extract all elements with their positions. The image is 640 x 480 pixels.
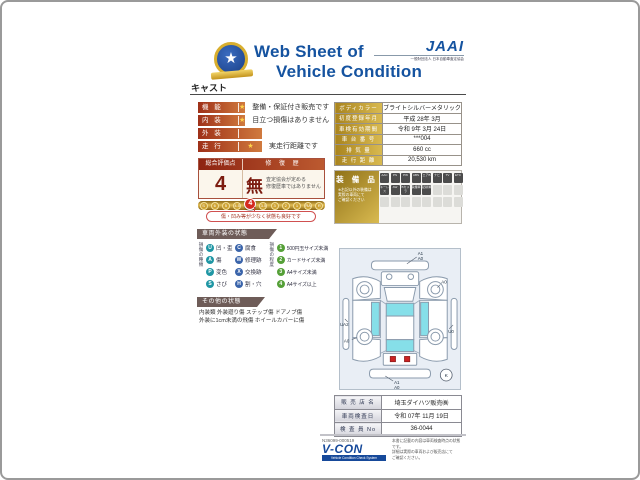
dealer-value: 令和 07年 11月 19日 [382,409,462,423]
legend-label: 修理跡 [245,256,262,264]
rating-bar: 機 能★ [198,102,245,113]
jaai-subtitle: 一般財団法人 日本自動車査定協会 [374,55,464,62]
table-row: 車両検査日令和 07年 11月 19日 [335,409,462,423]
vehicle-info-table: ボディカラーブライトシルバーメタリック 初度登録年月平成 28年 3月 車検有効… [334,102,462,166]
damage-code-icon: X [235,268,243,276]
equipment-badge-empty [401,197,410,207]
rating-bar: 外 装 [198,128,262,139]
hub-icon [360,285,369,294]
dealer-label: 販 売 店 名 [335,396,382,410]
rating-description: 実走行距離です [269,141,318,152]
damage-degree-header: 損傷の程度 [269,242,275,290]
grade-item: 5 [222,202,230,210]
grade-item: 2 [282,202,290,210]
rear-panel [383,353,416,365]
exterior-legend: 損傷の種類 U凹・歪 A傷 P変色 Sさび C腐食 W修理跡 X交換跡 H割・穴… [198,242,328,294]
legend-label: 割・穴 [245,280,262,288]
badge-row: キーレス AW Bカメラ 禁煙車 記録簿 [380,185,463,195]
info-value: 令和 9年 3月 24日 [383,124,462,135]
equipment-badge: 禁煙車 [412,185,421,195]
other-condition-line1: 内装類 外装廻り傷 ステップ傷 ドアノブ傷 [199,309,304,317]
damage-label-left-side: UA2 [340,322,349,327]
equipment-title-panel: 装 備 品 ※右記以外の装備は 実際の車両にて ご確認ください [335,171,379,223]
repair-history-note: 査定協会が定める 修復歴車ではありません [266,177,321,191]
equipment-badge: キーレス [380,185,389,195]
hub-icon [431,332,440,341]
star-icon: ★ [239,141,262,152]
vcon-logo: V-CON [322,443,363,455]
section-header-other: その他の状態 [197,297,265,307]
repair-history-cell: 無 査定協会が定める 修復歴車ではありません [243,170,324,198]
legend-label: 傷 [216,256,222,264]
front-glass [386,303,414,316]
equipment-badge: TV [443,173,452,183]
legend-label: 交換跡 [245,268,262,276]
rating-bar: 内 装★ [198,115,245,126]
equipment-badge-empty [422,197,431,207]
equipment-badge: 記録簿 [422,185,431,195]
grade-item: 3 [271,202,279,210]
legend-label: カードサイズ未満 [287,257,325,264]
title-line2: Vehicle Condition [276,62,422,82]
legend-item: W修理跡 [235,254,267,266]
hub-icon [360,332,369,341]
badge-row [380,197,463,207]
legend-item: X交換跡 [235,266,267,278]
rating-row-exterior: 外 装 [198,128,326,139]
condition-note-oval: 傷・凹み等が少なく状態も良好です [206,211,316,222]
legend-item: Sさび [206,278,233,290]
info-value: ブライトシルバーメタリック [383,103,462,114]
evaluation-box: 総合評価点 修 復 歴 4 無 査定協会が定める 修復歴車ではありません [198,158,325,199]
fine-print-line1: 本書に記載の内容は車両検査時点の状態です。 [392,439,464,450]
rating-label: 内 装 [198,115,238,126]
damage-label-right-side: U0 [448,329,454,334]
equipment-badge: エアB [422,173,431,183]
equipment-badges: AAC PS PW ABS エアB ナビ TV ETC キーレス AW Bカメラ… [379,171,464,223]
legend-item: 2カードサイズ未満 [277,254,328,266]
legend-label: A4サイズ以上 [287,281,317,288]
section-header-exterior: 車両外装の状態 [197,229,277,239]
damage-type-header: 損傷の種類 [198,242,204,290]
repair-history-header: 修 復 歴 [243,159,324,170]
damage-code-icon: C [235,244,243,252]
legend-item: 4A4サイズ以上 [277,278,328,290]
info-value: 20,530 km [383,155,462,166]
info-label: 車検有効期間 [335,124,383,135]
equipment-badge: ABS [412,173,421,183]
info-label: 排 気 量 [335,145,383,156]
car-diagram-svg: A1 A0 A0 UA2 U0 A0 A1 A0 K [340,249,460,389]
equipment-title: 装 備 品 [335,174,379,185]
star-icon [239,128,262,139]
rating-description: 整備・保証付き販売です [252,102,329,113]
equipment-badge-empty [380,197,389,207]
legend-item: 1500円玉サイズ未満 [277,242,328,254]
damage-code-icon: P [206,268,214,276]
damage-mark-rear-right [404,356,409,361]
rating-row-function: 機 能★ 整備・保証付き販売です [198,102,326,113]
equipment-badge-empty [454,197,463,207]
damage-code-icon: A [206,256,214,264]
headlight-right-icon [408,274,414,280]
info-value: 平成 28年 3月 [383,113,462,124]
legend-label: 変色 [216,268,227,276]
equipment-badge: AW [391,185,400,195]
dealer-info-table: 販 売 店 名埼玉ダイハツ販売㈱ 車両検査日令和 07年 11月 19日 検 査… [334,395,462,437]
car-damage-diagram: A1 A0 A0 UA2 U0 A0 A1 A0 K [339,248,461,390]
info-label: 走 行 距 離 [335,155,383,166]
table-row: 販 売 店 名埼玉ダイハツ販売㈱ [335,396,462,410]
legend-label: さび [216,280,227,288]
grade-item: S [200,202,208,210]
equipment-box: 装 備 品 ※右記以外の装備は 実際の車両にて ご確認ください AAC PS P… [334,170,462,224]
equipment-badge-empty [433,197,442,207]
evaluation-body: 4 無 査定協会が定める 修復歴車ではありません [199,170,324,198]
jaai-logo: JAAI 一般財団法人 日本自動車査定協会 [374,39,464,62]
damage-code-icon: H [235,280,243,288]
grade-scale-bar: S 6 5 4.5 4 3.5 3 2 1 RA R [198,201,325,210]
damage-label-rear-2: A0 [394,385,400,389]
degree-code-icon: 4 [277,280,285,288]
rear-glass [386,340,414,352]
info-label: 車 台 番 号 [335,134,383,145]
rating-row-mileage: 走 行★ 実走行距離です [198,141,326,152]
info-label: ボディカラー [335,103,383,114]
front-bumper [371,261,428,270]
table-row: 車検有効期間令和 9年 3月 24日 [335,124,462,135]
equipment-badge-empty [412,197,421,207]
degree-code-icon: 1 [277,244,285,252]
equipment-badge-empty [454,185,463,195]
legend-label: A4サイズ未満 [287,269,317,276]
degree-code-icon: 3 [277,268,285,276]
equipment-badge: ETC [454,173,463,183]
footer-divider [320,434,466,436]
windshield [384,288,415,302]
rating-row-interior: 内 装★ 目立つ損傷はありません [198,115,326,126]
equipment-badge: ナビ [433,173,442,183]
legend-item: U凹・歪 [206,242,233,254]
equipment-badge: PW [401,173,410,183]
other-condition-line2: 外装に1cm未満の飛傷 ホイールカバーに傷 [199,317,304,325]
rating-label: 走 行 [198,141,238,152]
grade-item: RA [304,202,312,210]
equipment-note: ※右記以外の装備は 実際の車両にて ご確認ください [335,188,379,203]
legend-item: 3A4サイズ未満 [277,266,328,278]
legend-label: 500円玉サイズ未満 [287,245,328,252]
damage-degree-col: 1500円玉サイズ未満 2カードサイズ未満 3A4サイズ未満 4A4サイズ以上 [277,242,328,294]
grade-item: 3.5 [259,202,267,210]
dealer-label: 車両検査日 [335,409,382,423]
left-window [371,302,379,335]
equipment-note-line2: 実際の車両にて [338,193,365,197]
header-divider [190,94,466,95]
legend-label: 腐食 [245,244,256,252]
jaai-wordmark: JAAI [374,39,464,54]
repair-note-line1: 査定協会が定める [266,177,306,183]
overall-score-header: 総合評価点 [199,159,243,170]
legend-item: P変色 [206,266,233,278]
right-window [421,302,429,335]
damage-label-rear-left-wheel: A0 [344,339,350,344]
dealer-value: 埼玉ダイハツ販売㈱ [382,396,462,410]
star-icon: ★ [239,115,245,126]
damage-label-front-2: A0 [418,256,424,261]
equipment-note-line1: ※右記以外の装備は [338,188,372,192]
vehicle-model-name: キャスト [191,81,227,94]
legend-label: 凹・歪 [216,244,233,252]
degree-code-icon: 2 [277,256,285,264]
emblem-ribbon [211,69,253,80]
table-row: 初度登録年月平成 28年 3月 [335,113,462,124]
damage-type-col1: U凹・歪 A傷 P変色 Sさび [206,242,233,294]
roof [386,316,414,340]
star-icon: ★ [239,102,245,113]
rating-bar: 走 行★ [198,141,262,152]
other-condition-text: 内装類 外装廻り傷 ステップ傷 ドアノブ傷 外装に1cm未満の飛傷 ホイールカバ… [199,309,304,325]
damage-label-front-right-wheel: A0 [441,280,447,285]
badge-row: AAC PS PW ABS エアB ナビ TV ETC [380,173,463,183]
equipment-note-line3: ご確認ください [338,198,365,202]
rating-label: 機 能 [198,102,238,113]
grade-item: 4.5 [233,202,241,210]
legend-item: C腐食 [235,242,267,254]
repair-history-value: 無 [246,172,263,197]
right-sill [451,298,457,349]
vcon-logo-subtitle: Vehicle Condition Check System [322,455,386,461]
evaluation-header: 総合評価点 修 復 歴 [199,159,324,170]
grade-item: R [315,202,323,210]
damage-mark-rear-left [390,356,395,361]
info-value: ***004 [383,134,462,145]
equipment-badge-empty [443,185,452,195]
equipment-badge-empty [443,197,452,207]
equipment-badge: Bカメラ [401,185,410,195]
equipment-badge-empty [391,197,400,207]
damage-code-icon: U [206,244,214,252]
damage-type-col2: C腐食 W修理跡 X交換跡 H割・穴 [235,242,267,294]
repair-note-line2: 修復歴車ではありません [266,184,321,190]
damage-code-icon: S [206,280,214,288]
legend-item: A傷 [206,254,233,266]
info-value: 660 cc [383,145,462,156]
table-row: 排 気 量660 cc [335,145,462,156]
rating-label: 外 装 [198,128,238,139]
info-label: 初度登録年月 [335,113,383,124]
headlight-left-icon [386,274,392,280]
grade-item: 6 [211,202,219,210]
overall-score-value: 4 [199,170,243,198]
damage-code-icon: W [235,256,243,264]
table-row: 車 台 番 号***004 [335,134,462,145]
equipment-badge: AAC [380,173,389,183]
rear-bumper [370,369,431,378]
fine-print: 本書に記載の内容は車両検査時点の状態です。 詳細は実際の車両および販売店にて ご… [392,439,464,461]
rating-description: 目立つ損傷はありません [252,115,329,126]
equipment-badge: PS [391,173,400,183]
legend-item: H割・穴 [235,278,267,290]
table-row: ボディカラーブライトシルバーメタリック [335,103,462,114]
web-sheet-page: ★ Web Sheet of Vehicle Condition JAAI 一般… [0,0,640,480]
grade-item: 1 [293,202,301,210]
fine-print-line3: ご確認ください。 [392,456,464,462]
table-row: 走 行 距 離20,530 km [335,155,462,166]
equipment-badge-empty [433,185,442,195]
